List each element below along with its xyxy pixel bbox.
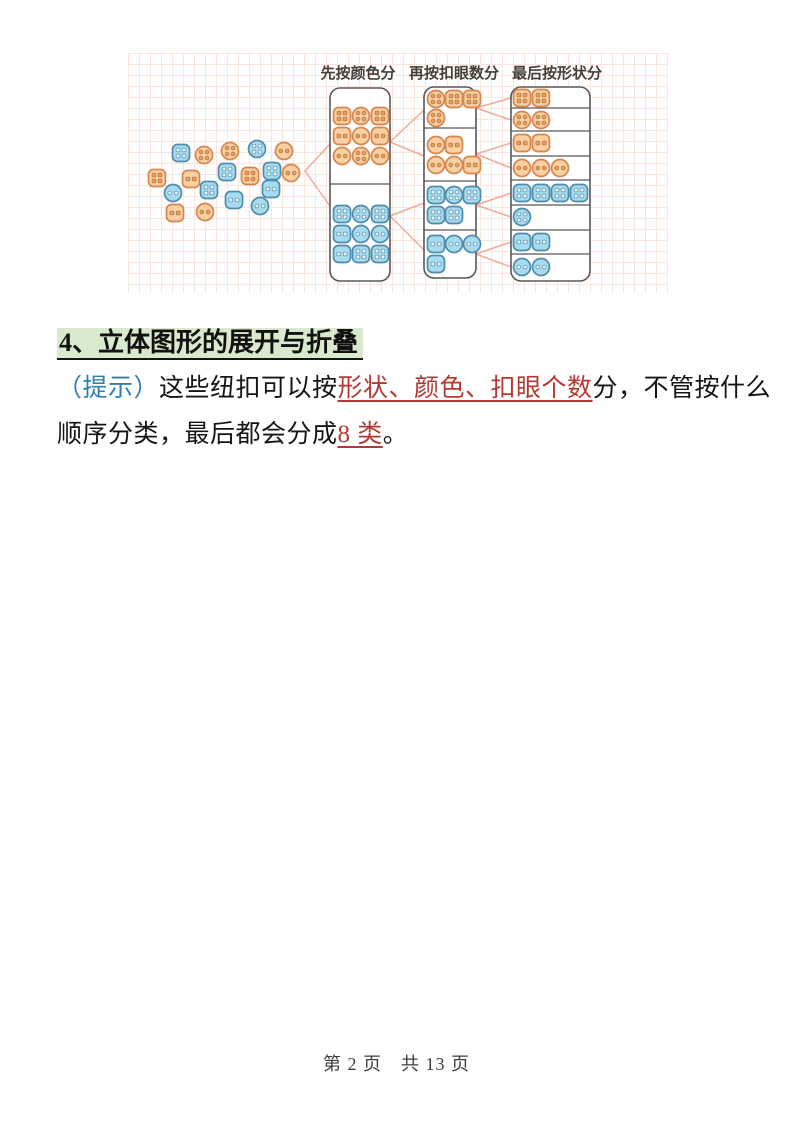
button-orange-ci-2hole — [446, 157, 463, 174]
button-blue-sq-2hole — [263, 181, 280, 198]
button-orange-ci-4hole — [353, 108, 370, 125]
button-sorting-diagram: 先按颜色分再按扣眼数分最后按形状分 — [128, 53, 668, 293]
button-blue-sq-4hole — [201, 182, 218, 199]
button-blue-sq-4hole — [446, 207, 463, 224]
button-orange-sq-2hole — [167, 205, 184, 222]
button-orange-sq-4hole — [242, 168, 259, 185]
button-blue-ci-4hole — [514, 209, 531, 226]
button-blue-sq-4hole — [571, 185, 588, 202]
button-blue-ci-4hole — [446, 187, 463, 204]
button-blue-sq-2hole — [428, 236, 445, 253]
button-orange-ci-2hole — [372, 148, 389, 165]
button-blue-sq-4hole — [219, 164, 236, 181]
button-blue-ci-2hole — [446, 236, 463, 253]
hint-paragraph-line2: 顺序分类，最后都会分成8 类。 — [57, 417, 747, 452]
column-label: 最后按形状分 — [512, 64, 602, 82]
hint-answer: 8 类 — [338, 421, 383, 448]
button-blue-ci-2hole — [514, 259, 531, 276]
button-orange-sq-4hole — [372, 108, 389, 125]
button-blue-ci-2hole — [372, 226, 389, 243]
page-number-footer: 第 2 页 共 13 页 — [0, 1050, 793, 1076]
button-orange-ci-2hole — [353, 128, 370, 145]
button-orange-ci-2hole — [428, 137, 445, 154]
button-orange-sq-4hole — [149, 170, 166, 187]
button-orange-ci-4hole — [533, 112, 550, 129]
button-blue-ci-2hole — [464, 236, 481, 253]
button-blue-sq-2hole — [514, 234, 531, 251]
button-orange-ci-4hole — [353, 148, 370, 165]
button-orange-ci-2hole — [533, 160, 550, 177]
button-blue-sq-2hole — [428, 256, 445, 273]
column-label: 再按扣眼数分 — [409, 64, 499, 82]
button-blue-sq-4hole — [514, 185, 531, 202]
hint-text-2: 分，不管按什么 — [593, 375, 772, 402]
button-blue-ci-2hole — [353, 226, 370, 243]
button-orange-ci-2hole — [334, 148, 351, 165]
hint-label: （提示） — [57, 375, 159, 402]
button-orange-ci-2hole — [552, 160, 569, 177]
button-blue-sq-4hole — [464, 187, 481, 204]
button-blue-ci-4hole — [353, 206, 370, 223]
button-orange-sq-4hole — [334, 108, 351, 125]
button-blue-sq-4hole — [428, 207, 445, 224]
button-blue-sq-4hole — [173, 145, 190, 162]
section-heading: 4、立体图形的展开与折叠 — [57, 326, 363, 360]
button-orange-ci-4hole — [428, 110, 445, 127]
button-orange-sq-4hole — [533, 90, 550, 107]
button-orange-ci-4hole — [222, 143, 239, 160]
hint-keywords: 形状、颜色、扣眼个数 — [338, 375, 593, 402]
button-blue-sq-2hole — [334, 226, 351, 243]
button-blue-sq-4hole — [533, 185, 550, 202]
button-blue-sq-4hole — [552, 185, 569, 202]
button-blue-sq-2hole — [226, 192, 243, 209]
button-orange-ci-2hole — [276, 143, 293, 160]
button-orange-sq-2hole — [334, 128, 351, 145]
button-orange-sq-2hole — [183, 171, 200, 188]
hint-paragraph-line1: （提示）这些纽扣可以按形状、颜色、扣眼个数分，不管按什么 — [57, 371, 747, 406]
button-blue-sq-4hole — [264, 163, 281, 180]
button-orange-ci-4hole — [196, 147, 213, 164]
hint-text-4: 。 — [383, 421, 409, 448]
button-blue-sq-4hole — [372, 246, 389, 263]
button-orange-ci-4hole — [514, 112, 531, 129]
button-orange-sq-4hole — [446, 91, 463, 108]
button-blue-sq-2hole — [334, 246, 351, 263]
button-blue-sq-4hole — [372, 206, 389, 223]
document-page: 先按颜色分再按扣眼数分最后按形状分 4、立体图形的展开与折叠 （提示）这些纽扣可… — [0, 0, 793, 1122]
button-blue-sq-2hole — [533, 234, 550, 251]
button-orange-sq-2hole — [514, 135, 531, 152]
button-orange-ci-2hole — [514, 160, 531, 177]
button-blue-ci-2hole — [533, 259, 550, 276]
button-blue-sq-4hole — [334, 206, 351, 223]
button-blue-ci-2hole — [252, 198, 269, 215]
hint-text-1: 这些纽扣可以按 — [159, 375, 338, 402]
button-orange-sq-2hole — [372, 128, 389, 145]
button-orange-sq-4hole — [464, 91, 481, 108]
column-label: 先按颜色分 — [320, 64, 395, 82]
button-blue-sq-4hole — [428, 187, 445, 204]
button-blue-ci-4hole — [249, 141, 266, 158]
hint-text-3: 顺序分类，最后都会分成 — [57, 421, 338, 448]
button-orange-sq-4hole — [514, 90, 531, 107]
diagram-svg: 先按颜色分再按扣眼数分最后按形状分 — [128, 53, 668, 293]
section-heading-text: 4、立体图形的展开与折叠 — [57, 328, 363, 360]
button-orange-sq-2hole — [446, 137, 463, 154]
column-labels: 先按颜色分再按扣眼数分最后按形状分 — [320, 64, 602, 82]
button-blue-ci-2hole — [165, 185, 182, 202]
button-orange-sq-2hole — [533, 135, 550, 152]
button-blue-sq-4hole — [353, 246, 370, 263]
button-orange-ci-4hole — [428, 91, 445, 108]
button-orange-ci-2hole — [428, 157, 445, 174]
button-orange-sq-2hole — [464, 157, 481, 174]
button-orange-ci-2hole — [283, 165, 300, 182]
button-orange-ci-2hole — [197, 204, 214, 221]
